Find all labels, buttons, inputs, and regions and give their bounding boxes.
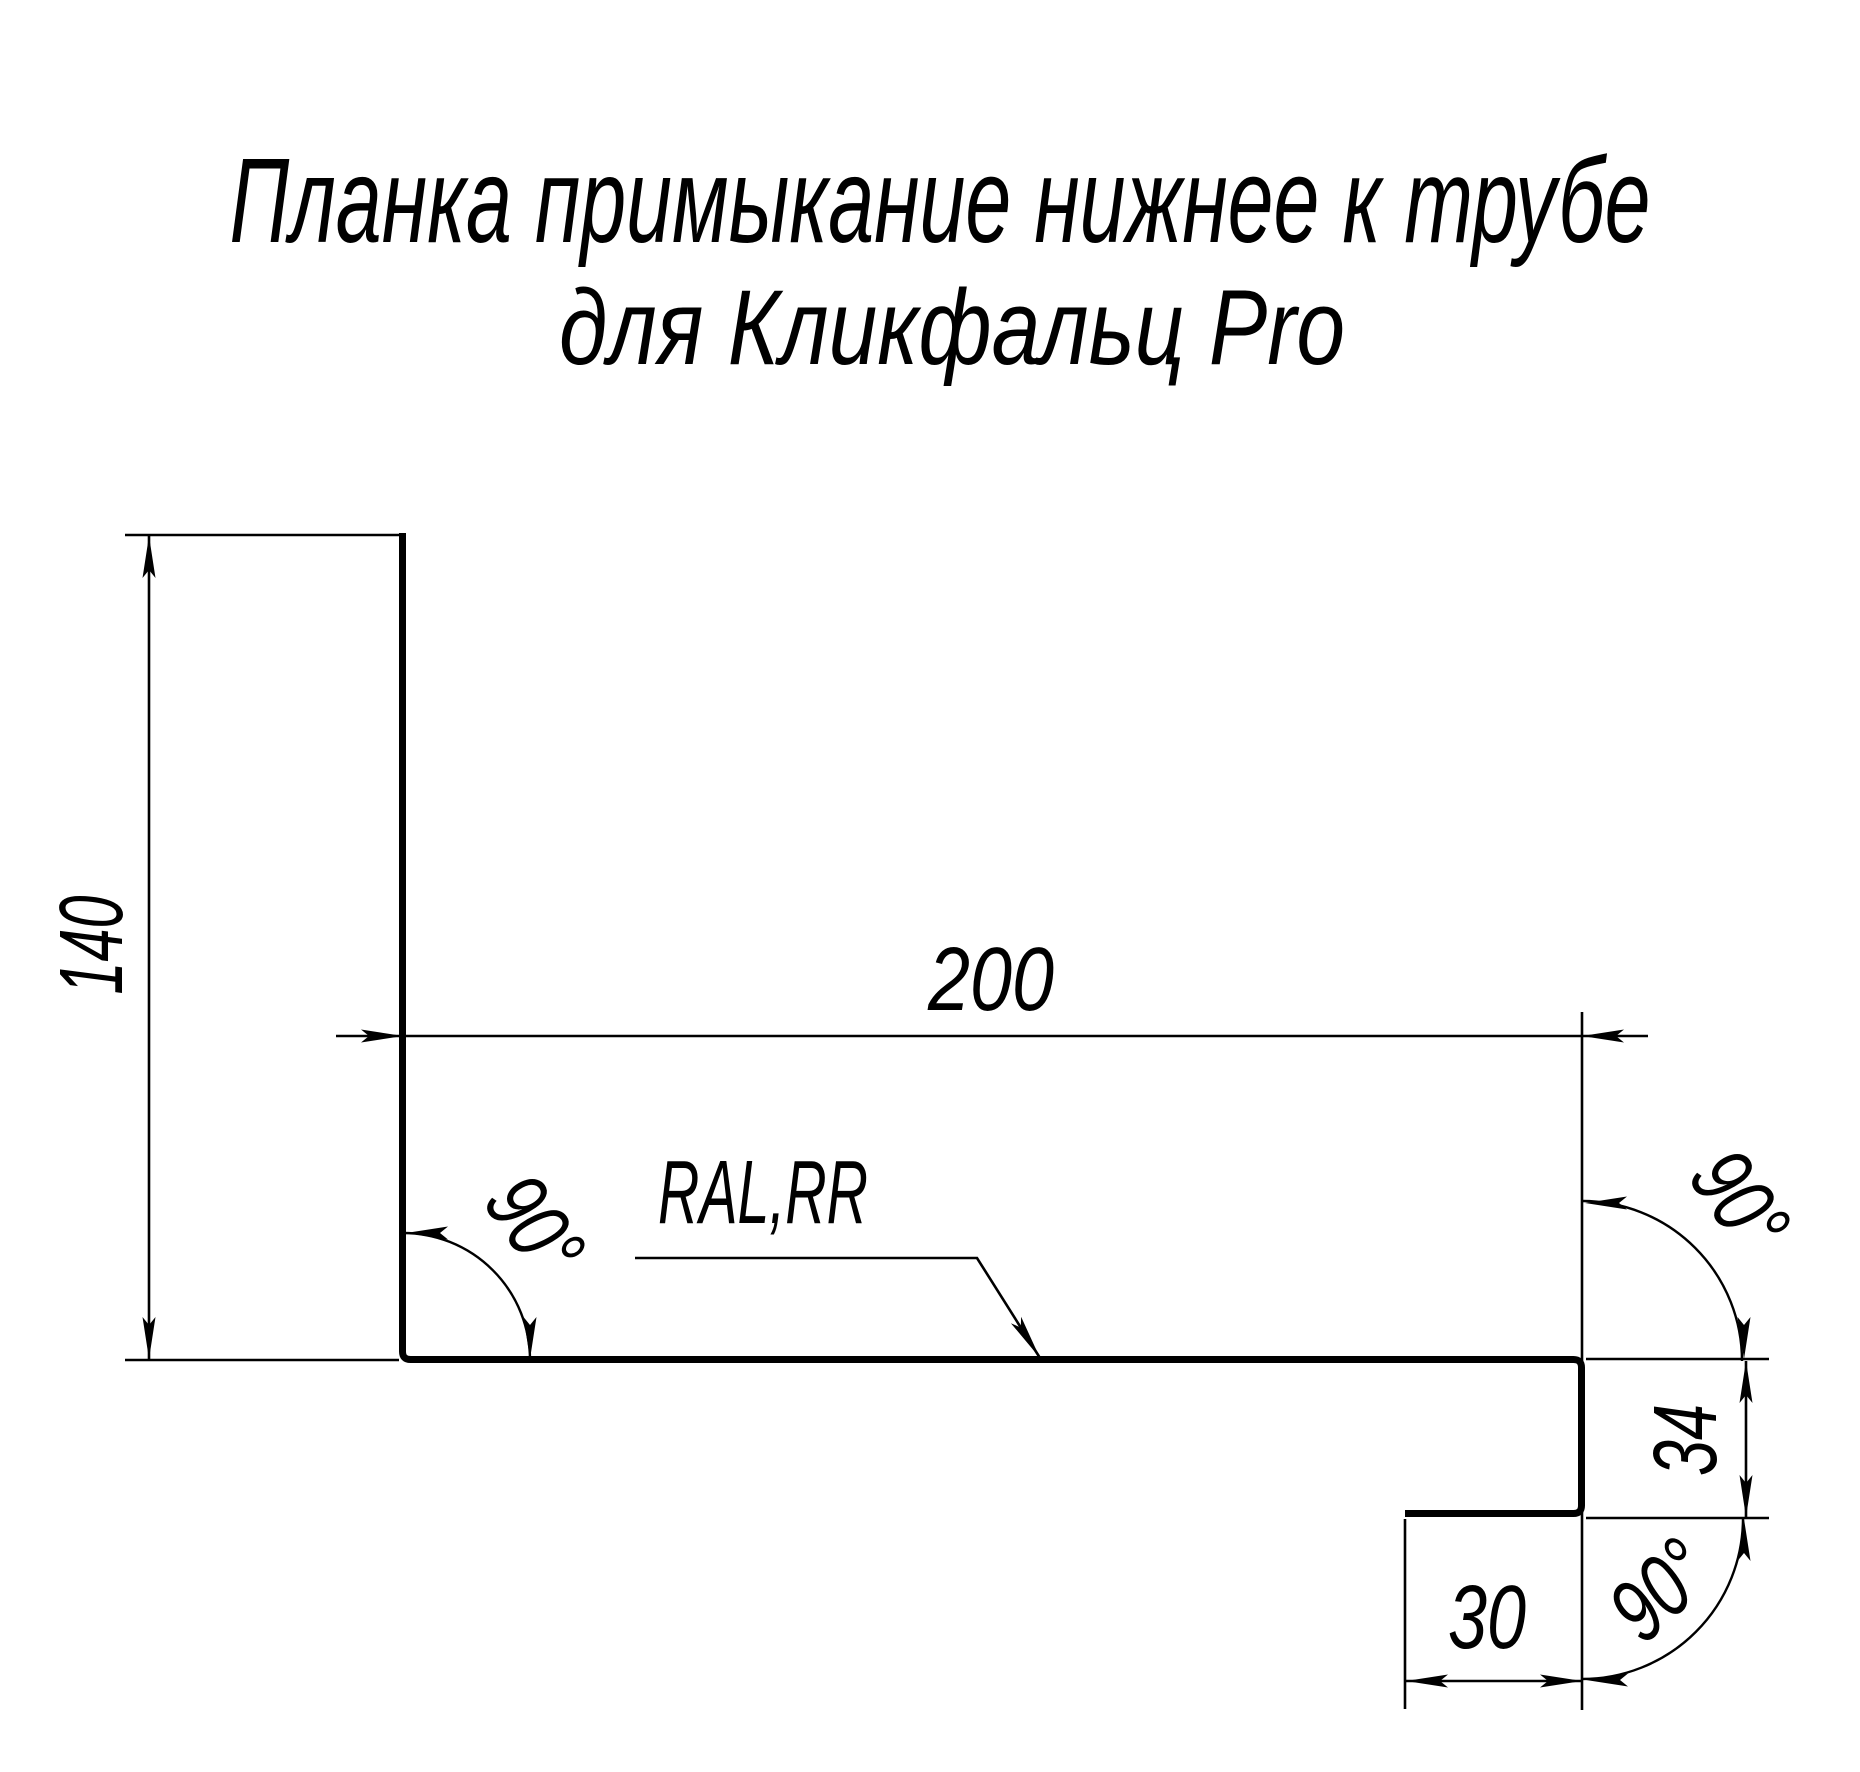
svg-text:34: 34	[1636, 1404, 1736, 1476]
svg-text:90°: 90°	[1589, 1519, 1730, 1660]
svg-text:RAL,RR: RAL,RR	[658, 1143, 868, 1243]
svg-text:200: 200	[927, 930, 1054, 1030]
svg-text:для Кликфальц Pro: для Кликфальц Pro	[559, 267, 1345, 387]
svg-text:90°: 90°	[466, 1156, 604, 1295]
svg-text:90°: 90°	[1671, 1131, 1809, 1270]
svg-text:30: 30	[1448, 1568, 1526, 1668]
svg-text:Планка примыкание нижнее к тру: Планка примыкание нижнее к трубе	[230, 132, 1651, 268]
svg-text:140: 140	[42, 896, 142, 995]
